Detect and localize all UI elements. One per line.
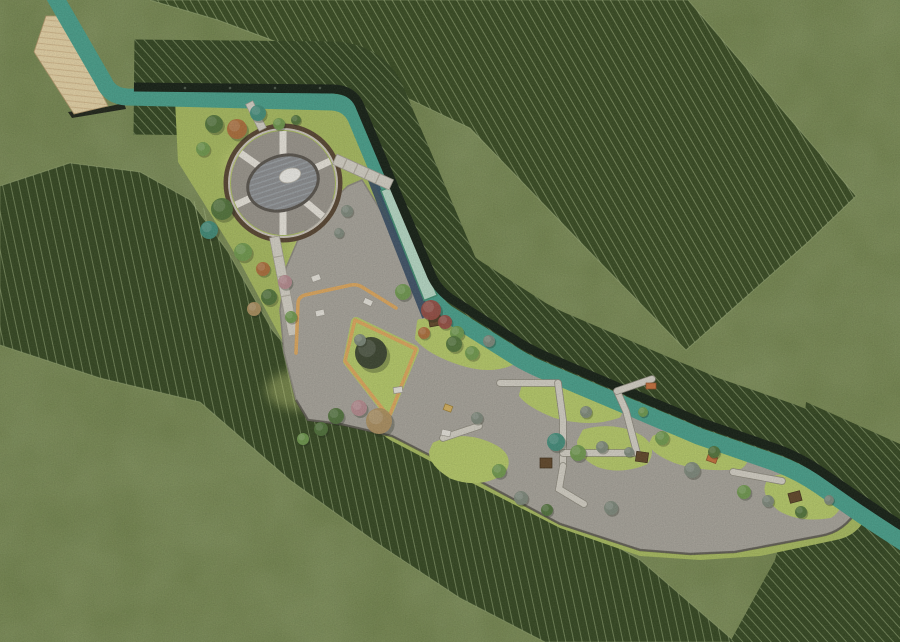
grain-light-overlay	[0, 0, 900, 642]
park-master-plan-svg	[0, 0, 900, 642]
site-plan-stage	[0, 0, 900, 642]
